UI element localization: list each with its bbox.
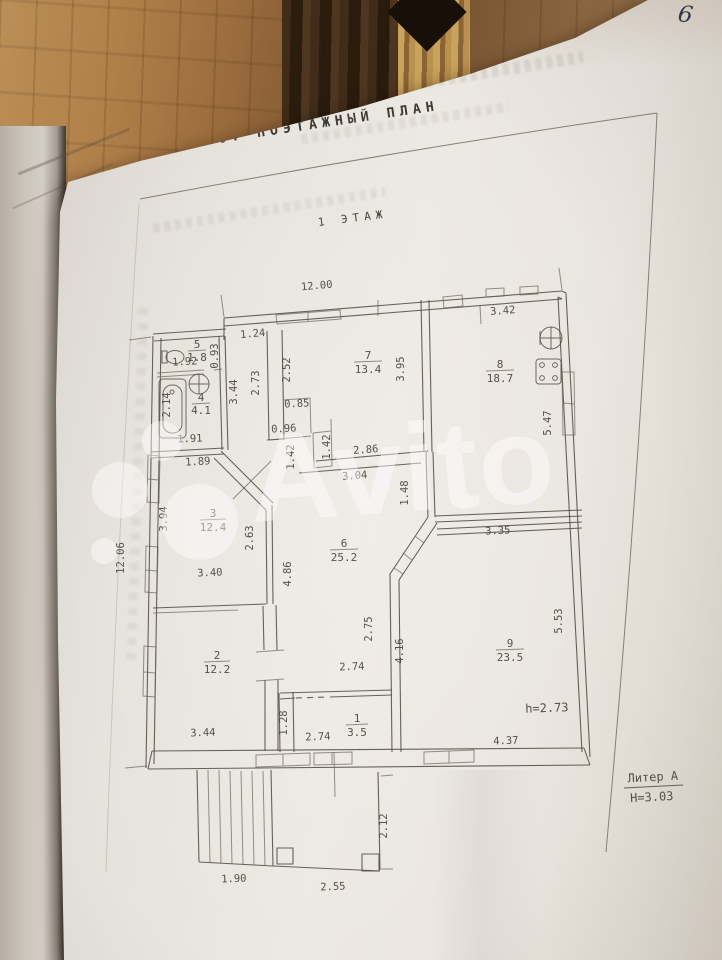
svg-text:3.5: 3.5 — [347, 726, 367, 739]
dim-label: 2.14 — [161, 392, 173, 417]
building-height-note: Н=3.03 — [630, 789, 674, 805]
watermark-dot — [92, 462, 148, 518]
room-label: 923.5 — [496, 637, 524, 664]
kitchen-sink-icon — [540, 327, 562, 349]
document-page-wrapper: 6. ПОЭТАЖНЫЙ ПЛАН 1 ЭТАЖ 6 — [0, 0, 722, 960]
dim-label: 1.28 — [278, 710, 290, 735]
dim-label: 4.86 — [282, 561, 294, 586]
dim-label: 3.40 — [197, 567, 223, 580]
dim-label: 4.37 — [493, 735, 519, 748]
watermark-dot — [91, 538, 117, 564]
dim-label: 5.53 — [553, 608, 565, 633]
svg-text:23.5: 23.5 — [497, 651, 524, 664]
floor-plan-drawing: 51.8 44.1 312.4 212.2 13.5 625.2 713.4 8… — [0, 0, 722, 960]
watermark-dot — [142, 421, 182, 461]
dim-label: 3.95 — [395, 356, 407, 381]
dim-label: 3.44 — [228, 379, 240, 404]
dim-label: 2.55 — [320, 881, 346, 894]
watermark-dot — [162, 484, 238, 560]
dim-label: 0.93 — [209, 343, 221, 368]
room-label: 13.5 — [346, 712, 368, 739]
room-label: 818.7 — [486, 358, 514, 385]
liter-label: Литер А — [627, 769, 679, 786]
dim-label: 2.75 — [363, 616, 375, 641]
dim-label: 3.44 — [190, 727, 216, 740]
svg-text:7: 7 — [365, 349, 372, 362]
svg-text:4.1: 4.1 — [191, 404, 211, 417]
dim-label: 2.73 — [250, 370, 262, 395]
dim-label: 3.42 — [490, 304, 516, 318]
dim-label: 1.90 — [221, 873, 247, 886]
dim-label: 1.24 — [240, 327, 266, 341]
dim-label: 12.06 — [115, 542, 127, 574]
ceiling-height-note: h=2.73 — [525, 700, 569, 716]
svg-text:2: 2 — [214, 649, 221, 662]
dim-label: 2.12 — [378, 813, 390, 838]
svg-text:18.7: 18.7 — [487, 372, 514, 385]
svg-text:8: 8 — [497, 358, 504, 371]
dim-label: 2.74 — [305, 731, 331, 744]
svg-text:1: 1 — [354, 712, 361, 725]
photo-of-floor-plan-page: { "photo": { "page_number": "6" }, "docu… — [0, 0, 722, 960]
dim-label: 4.16 — [394, 638, 406, 663]
document-page: 6. ПОЭТАЖНЫЙ ПЛАН 1 ЭТАЖ 6 — [0, 0, 722, 960]
svg-text:25.2: 25.2 — [331, 551, 358, 564]
svg-text:9: 9 — [507, 637, 514, 650]
svg-text:5: 5 — [194, 338, 201, 351]
dim-label: 1.89 — [185, 455, 211, 468]
svg-text:4: 4 — [198, 391, 205, 404]
room-label: 713.4 — [354, 349, 382, 376]
room-label: 212.2 — [204, 649, 231, 676]
dim-label: 12.00 — [300, 279, 333, 294]
svg-text:12.2: 12.2 — [204, 663, 231, 676]
notes: h=2.73 Литер А Н=3.03 — [525, 700, 683, 805]
dim-label: 1.92 — [172, 355, 198, 368]
watermark-text: Avito — [244, 390, 558, 549]
room-label: 44.1 — [191, 391, 211, 417]
dim-label: 2.52 — [281, 357, 293, 382]
dim-label: 2.74 — [339, 661, 365, 674]
svg-text:13.4: 13.4 — [355, 363, 382, 376]
stove-icon — [536, 359, 561, 384]
